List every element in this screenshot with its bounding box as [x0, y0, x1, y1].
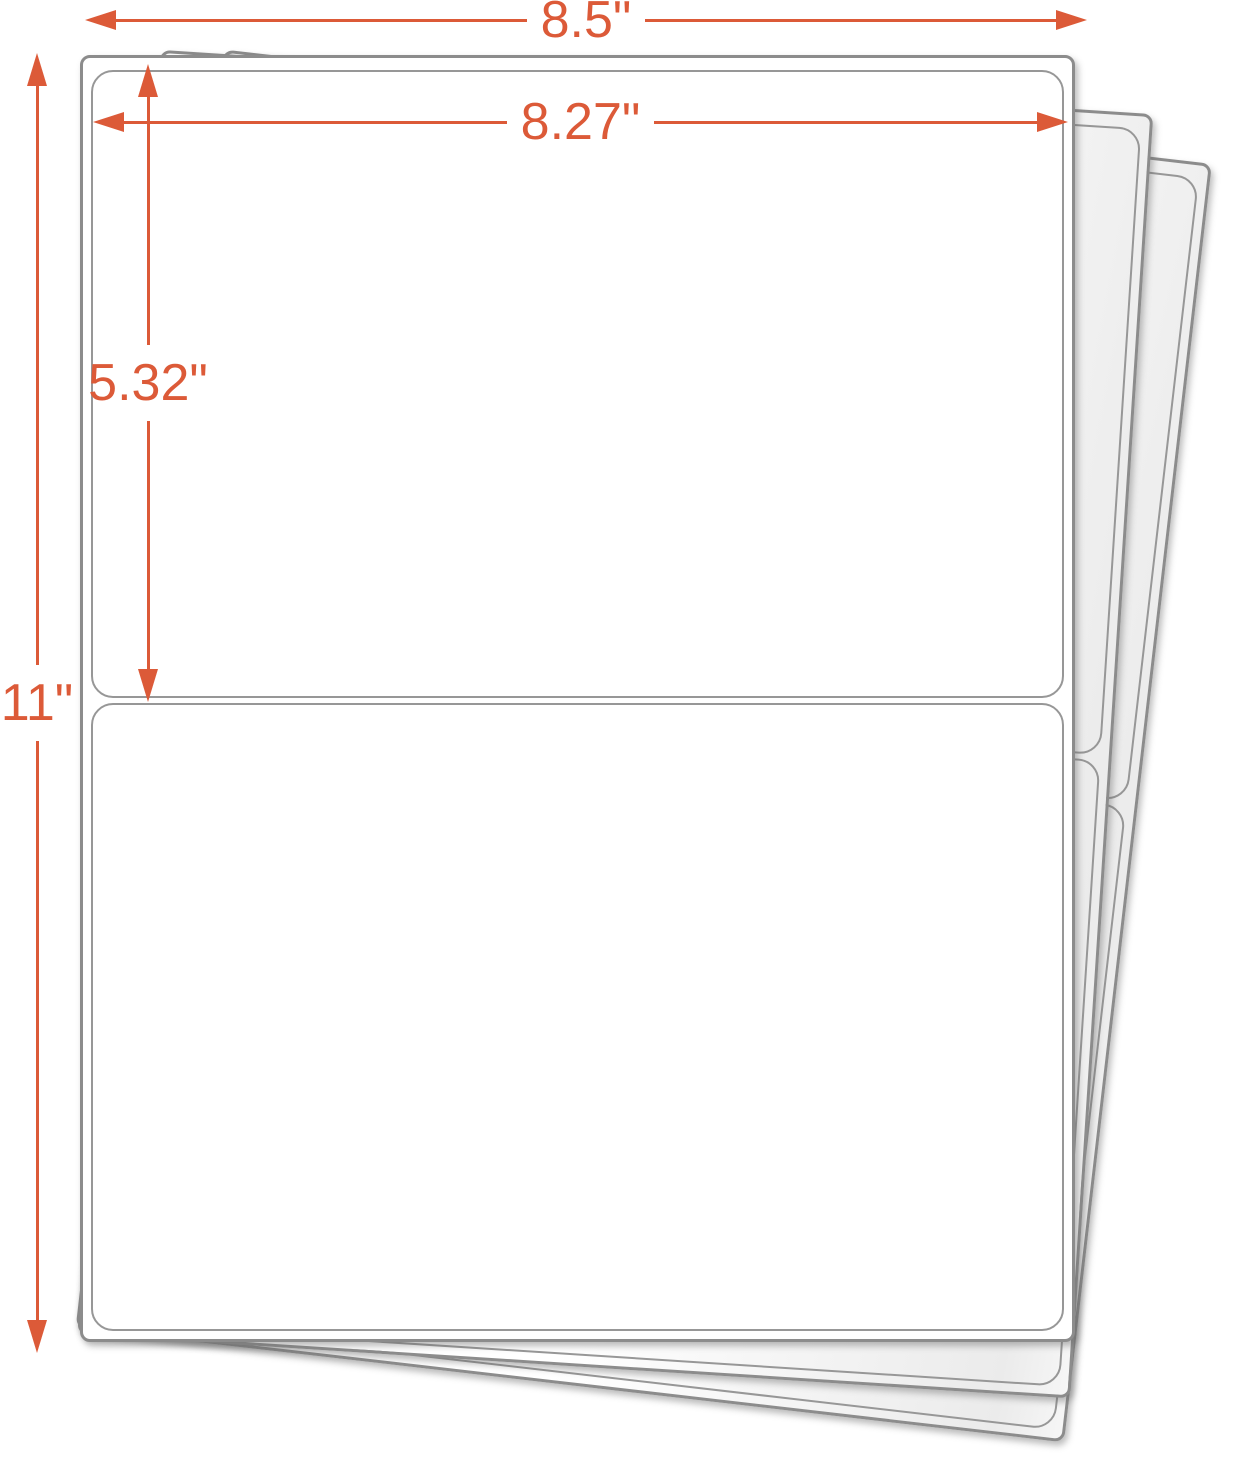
- bottom-label-outline: [91, 703, 1064, 1331]
- arrow-up-icon: [27, 53, 47, 86]
- arrow-left-icon: [85, 10, 116, 30]
- arrow-right-icon: [1056, 10, 1087, 30]
- product-illustration: 8.5" 8.27" 5.32" 11": [0, 0, 1240, 1457]
- dimension-label-width: 8.27": [93, 105, 1068, 139]
- top-label-outline: [91, 70, 1064, 698]
- arrow-right-icon: [1037, 112, 1068, 132]
- label-width-value: 8.27": [507, 96, 655, 148]
- dimension-line: [36, 741, 39, 1320]
- dimension-line: [147, 421, 150, 669]
- dimension-line: [645, 19, 1056, 22]
- dimension-sheet-width: 8.5": [85, 3, 1087, 37]
- dimension-line: [36, 86, 39, 665]
- dimension-line: [147, 97, 150, 345]
- dimension-line: [654, 121, 1037, 124]
- arrow-up-icon: [138, 64, 158, 97]
- front-sheet: [80, 55, 1075, 1342]
- dimension-line: [116, 19, 527, 22]
- sheet-height-value: 11": [1, 665, 73, 741]
- sheet-width-value: 8.5": [527, 0, 646, 46]
- dimension-sheet-height: 11": [0, 53, 107, 1353]
- arrow-down-icon: [27, 1320, 47, 1353]
- arrow-down-icon: [138, 669, 158, 702]
